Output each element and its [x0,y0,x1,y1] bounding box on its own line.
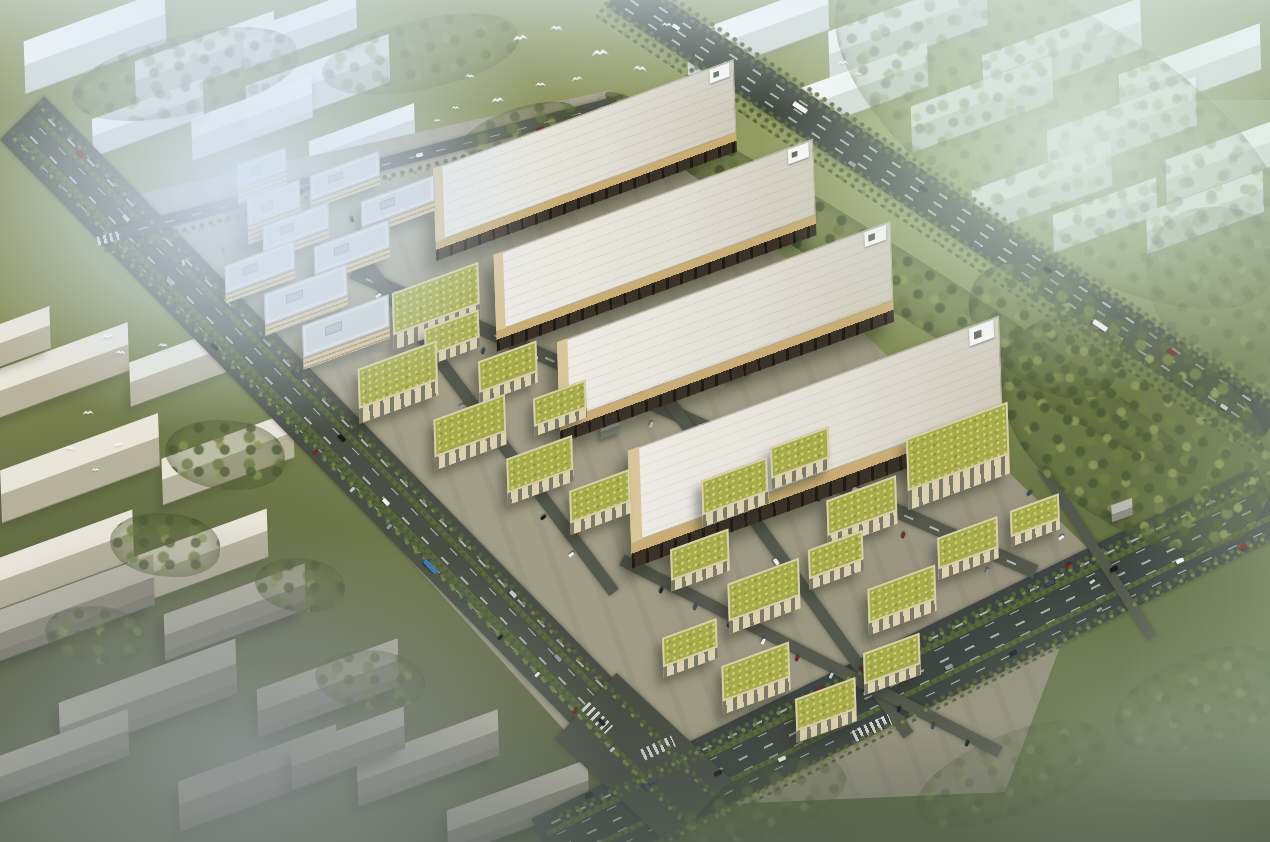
bird-icon [433,117,441,122]
scene [0,0,1270,842]
bird-icon [661,20,674,28]
bird-icon [451,105,460,110]
bird-icon [158,342,168,349]
bird-icon [65,445,76,452]
bird-icon [535,81,546,87]
bird-icon [837,58,849,66]
bird-icon [633,63,648,73]
bird-icon [114,348,125,355]
bird-icon [465,73,475,80]
bird-icon [82,408,95,416]
bird-icon [91,467,100,472]
bird-icon [591,46,610,58]
aerial-rendering-viewport: Bird's-eye architectural rendering of a … [0,0,1270,842]
bird-icon [853,71,862,77]
bird-icon [549,24,563,33]
bird-icon [111,440,124,449]
